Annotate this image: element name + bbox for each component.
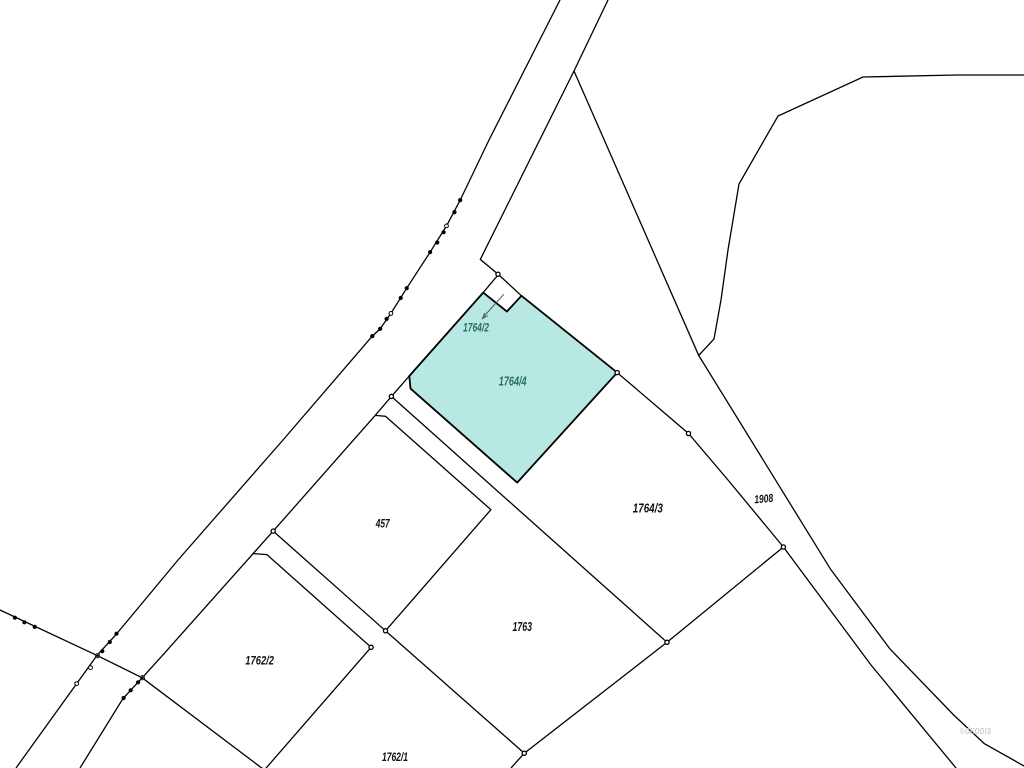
svg-text:1762/1: 1762/1 — [382, 752, 408, 764]
svg-text:© G E O D I S: © G E O D I S — [960, 727, 991, 736]
svg-text:1762/2: 1762/2 — [245, 656, 274, 668]
svg-text:1764/4: 1764/4 — [499, 375, 527, 389]
svg-text:1908: 1908 — [754, 493, 774, 507]
svg-text:1764/3: 1764/3 — [633, 502, 663, 516]
svg-text:457: 457 — [375, 519, 390, 531]
svg-text:1764/2: 1764/2 — [463, 323, 489, 335]
svg-text:1763: 1763 — [513, 620, 533, 634]
